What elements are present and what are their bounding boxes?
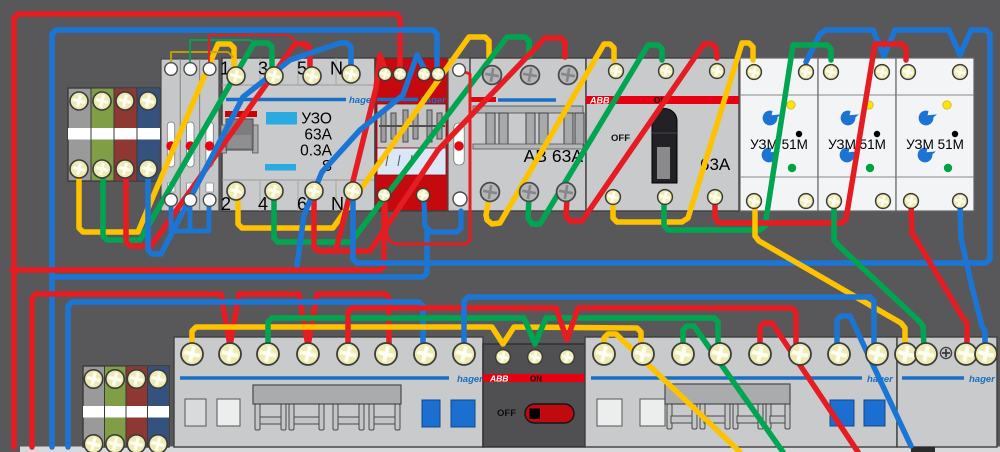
svg-text:hager: hager [457,374,484,385]
svg-text:ABB: ABB [489,374,508,384]
svg-text:ABB: ABB [589,96,610,106]
svg-text:УЗМ 51М: УЗМ 51М [906,137,964,152]
svg-text:hager: hager [969,374,996,385]
svg-text:УЗО: УЗО [301,111,332,128]
svg-text:N: N [330,59,343,79]
svg-text:ON: ON [530,375,542,384]
svg-text:OFF: OFF [497,408,516,419]
svg-text:OFF: OFF [611,133,630,144]
svg-text:0.3А: 0.3А [300,143,333,160]
svg-text:63А: 63А [304,127,332,144]
